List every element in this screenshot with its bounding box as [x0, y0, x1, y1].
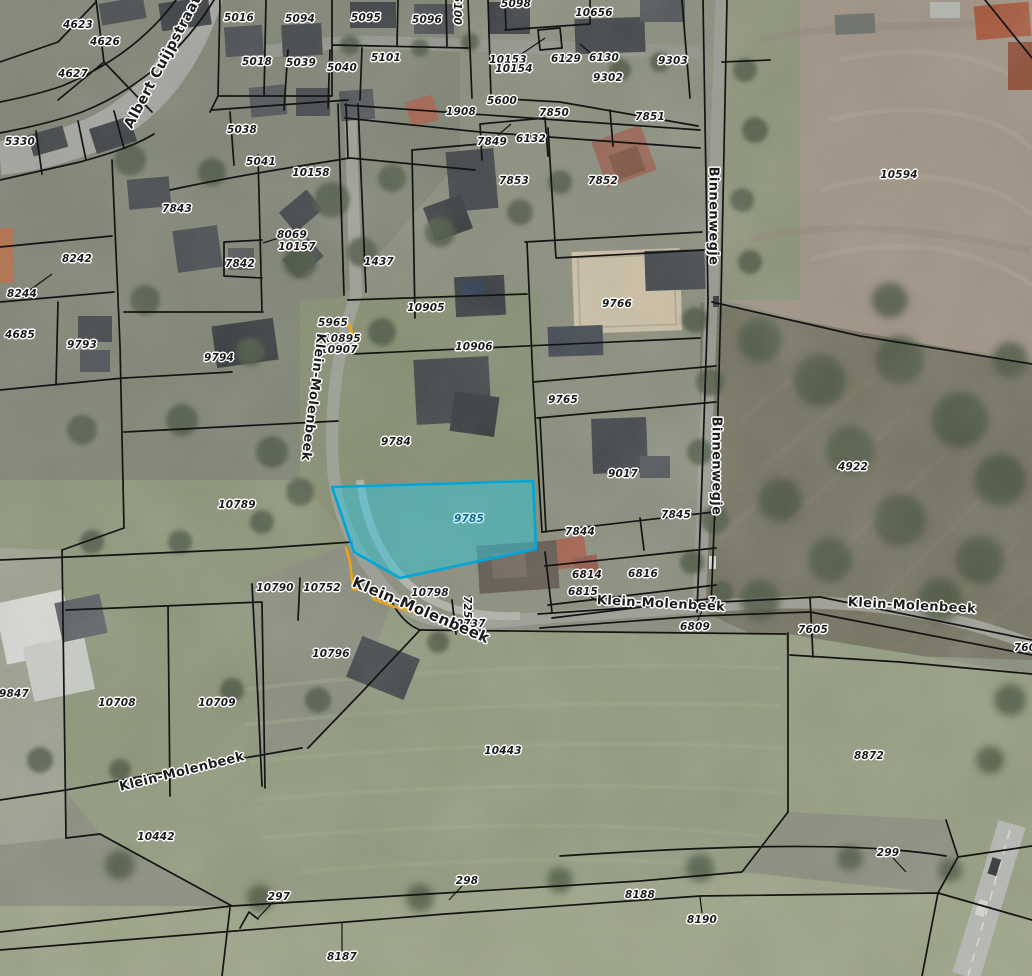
- parcel-label: 299: [877, 847, 900, 859]
- parcel-label: 10158: [292, 167, 330, 179]
- parcel-label: 10752: [303, 582, 341, 594]
- parcel-label: 10905: [407, 302, 445, 314]
- parcel-label: 6809: [680, 621, 710, 633]
- parcel-label: 10656: [575, 7, 613, 19]
- parcel-label: 7843: [162, 203, 192, 215]
- street-label: Binnenwegje: [709, 417, 724, 516]
- parcel-label: 5041: [246, 156, 276, 168]
- parcel-label: 10798: [411, 587, 449, 599]
- parcel-label: 5096: [412, 14, 442, 26]
- parcel-label: 10708: [98, 697, 136, 709]
- parcel-label: 5100: [451, 0, 463, 25]
- parcel-label: 298: [456, 875, 479, 887]
- parcel-label: 8187: [327, 951, 357, 963]
- parcel-label: 5040: [327, 62, 357, 74]
- parcel-label: 10906: [455, 341, 493, 353]
- parcel-label: 5965: [318, 317, 348, 329]
- parcel-label: 9302: [593, 72, 623, 84]
- parcel-label: 5039: [286, 57, 316, 69]
- map-viewport[interactable]: 4623462646275330501650945095509651005098…: [0, 0, 1032, 976]
- parcel-label: 5094: [285, 13, 315, 25]
- parcel-label: 10796: [312, 648, 350, 660]
- parcel-label: 10790: [256, 582, 294, 594]
- parcel-label: 10157: [278, 241, 316, 253]
- map-labels: 4623462646275330501650945095509651005098…: [0, 0, 1032, 976]
- parcel-label: 7605: [798, 624, 828, 636]
- parcel-label: 5600: [487, 95, 517, 107]
- parcel-label: 8069: [277, 229, 307, 241]
- parcel-label: 6814: [572, 569, 602, 581]
- parcel-label: 5098: [501, 0, 531, 10]
- parcel-label: 9766: [602, 298, 632, 310]
- parcel-label: 4623: [63, 19, 93, 31]
- parcel-label: 7844: [565, 526, 595, 538]
- parcel-label: 8242: [62, 253, 92, 265]
- parcel-label: 8244: [7, 288, 37, 300]
- parcel-label: 7842: [225, 258, 255, 270]
- parcel-label: 9017: [608, 468, 638, 480]
- parcel-label: 9793: [67, 339, 97, 351]
- parcel-label: 10442: [137, 831, 175, 843]
- parcel-label: 4627: [58, 68, 88, 80]
- street-label: Albert Cuijpstraat: [121, 0, 205, 131]
- parcel-label: 6815: [568, 586, 598, 598]
- parcel-label: 7852: [588, 175, 618, 187]
- parcel-label: 7853: [499, 175, 529, 187]
- parcel-label: 7850: [539, 107, 569, 119]
- parcel-label: 10443: [484, 745, 522, 757]
- parcel-label: 4685: [5, 329, 35, 341]
- parcel-label: 1437: [364, 256, 394, 268]
- parcel-label: 9784: [381, 436, 411, 448]
- parcel-label: 8190: [687, 914, 717, 926]
- parcel-label: 9765: [548, 394, 578, 406]
- parcel-label: 7845: [661, 509, 691, 521]
- parcel-label: 760: [1014, 642, 1032, 654]
- parcel-label: 5101: [371, 52, 401, 64]
- parcel-label: 5330: [5, 136, 35, 148]
- street-label: Klein-Molenbeek: [847, 595, 976, 617]
- street-label: Klein-Molenbeek: [596, 593, 725, 615]
- street-label: Klein-Molenbeek: [298, 332, 329, 461]
- street-label: Binnenwegje: [706, 167, 721, 266]
- parcel-label: 10154: [495, 63, 533, 75]
- parcel-label: 4626: [90, 36, 120, 48]
- parcel-label: 5016: [224, 12, 254, 24]
- parcel-label: 5018: [242, 56, 272, 68]
- parcel-label: 10709: [198, 697, 236, 709]
- parcel-label: 7851: [635, 111, 665, 123]
- parcel-label: 6130: [589, 52, 619, 64]
- parcel-label: 5095: [351, 12, 381, 24]
- selected-parcel-label[interactable]: 9785: [454, 513, 484, 525]
- parcel-label: 10594: [880, 169, 918, 181]
- parcel-label: 4922: [838, 461, 868, 473]
- parcel-label: 10789: [218, 499, 256, 511]
- parcel-label: 297: [268, 891, 291, 903]
- parcel-label: 9303: [658, 55, 688, 67]
- parcel-label: 8188: [625, 889, 655, 901]
- parcel-label: 6816: [628, 568, 658, 580]
- parcel-label: 8872: [854, 750, 884, 762]
- parcel-label: 1908: [446, 106, 476, 118]
- parcel-label: 7849: [477, 136, 507, 148]
- parcel-label: 6129: [551, 53, 581, 65]
- parcel-label: 5038: [227, 124, 257, 136]
- parcel-label: 9847: [0, 688, 29, 700]
- parcel-label: 6132: [516, 133, 546, 145]
- street-label: Klein-Molenbeek: [118, 749, 246, 795]
- parcel-label: 9794: [204, 352, 234, 364]
